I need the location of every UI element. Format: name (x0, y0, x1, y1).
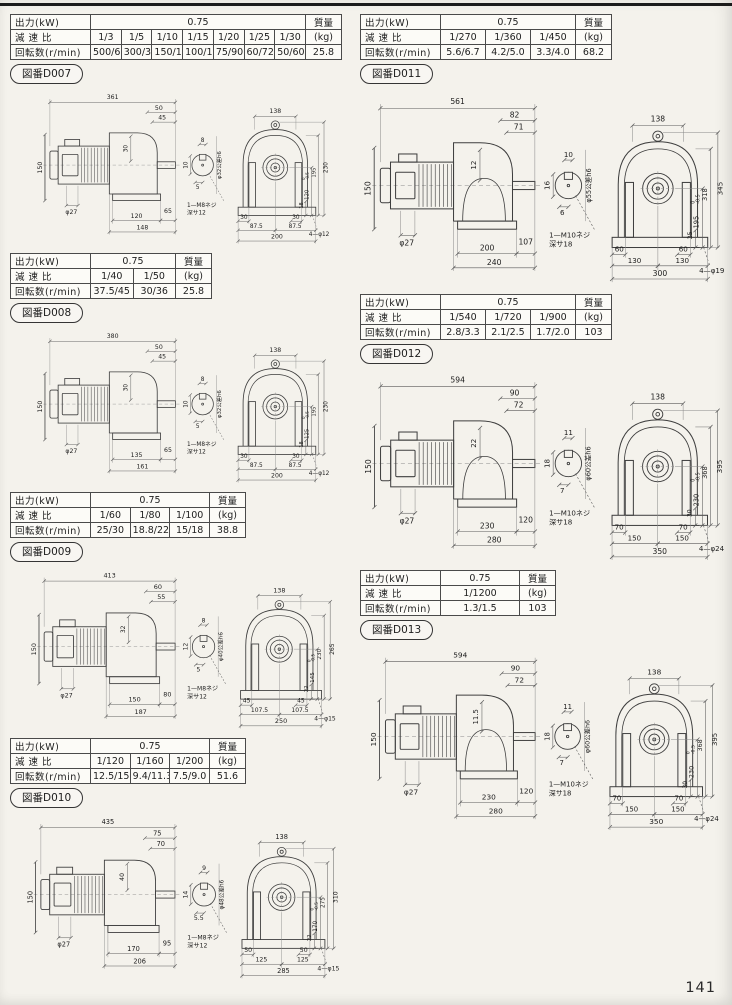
speed-value: 5.6/6.7 (441, 45, 486, 60)
dim-key_side: 10 (183, 400, 189, 408)
kg-label: (kg) (576, 30, 612, 45)
dim-key_bot: 5 (196, 185, 200, 191)
dim-inner: 230 (317, 649, 323, 660)
dim-body: 30 (124, 145, 130, 153)
dim-height: 150 (30, 643, 38, 655)
kg-label: (kg) (176, 269, 212, 284)
speed-label: 回転数(r/min) (11, 769, 91, 784)
output-value: 0.75 (441, 15, 576, 30)
dim-tol_l: -0.5 (696, 194, 702, 204)
speed-value: 500/600 (91, 45, 122, 60)
dim-depth: 深サ12 (187, 448, 206, 456)
mass-label: 質量 (576, 295, 612, 310)
dim-base_w: 300 (653, 269, 668, 278)
dim-screw: 1—M10ネジ (549, 781, 589, 789)
dim-toe: 22 (304, 686, 310, 693)
dim-key_bot: 5 (196, 424, 200, 430)
speed-value: 30/36 (133, 284, 176, 299)
dim-height: 150 (364, 181, 373, 196)
dim-flange: 138 (647, 667, 661, 676)
speed-value: 37.5/45 (91, 284, 134, 299)
dim-key_top: 11 (564, 428, 573, 437)
dim-top2: 45 (158, 115, 166, 122)
dim-center1: 87.5 (250, 224, 263, 230)
dim-mshaft: φ27 (404, 788, 419, 797)
dim-key_side: 18 (543, 458, 552, 468)
dim-base_w: 250 (275, 717, 287, 725)
speed-value: 4.2/5.0 (486, 45, 531, 60)
dim-mount: 170 (313, 920, 319, 931)
dim-overall: 230 (324, 401, 330, 412)
dim-center2: 87.5 (289, 463, 302, 469)
dim-depth: 深サ12 (187, 209, 206, 217)
mass-label: 質量 (176, 254, 212, 269)
dim-foot2: 70 (679, 522, 689, 531)
dim-foot1: 45 (243, 698, 251, 705)
dim-top2: 45 (158, 354, 166, 361)
figure-number-pill: 図番D011 (360, 64, 433, 84)
dim-center1: 150 (628, 534, 642, 543)
dim-overall: 310 (333, 891, 340, 903)
dim-base2: 187 (134, 708, 146, 716)
ratio-label: 減 速 比 (11, 508, 91, 523)
dim-total: 561 (450, 97, 465, 106)
dim-foot2: 60 (679, 245, 689, 254)
dim-depth: 深サ18 (549, 517, 573, 526)
ratio-value: 1/900 (531, 310, 576, 325)
speed-value: 100/120 (183, 45, 214, 60)
figure-block-d009: 出力(kW)0.75質量減 速 比1/601/801/100(kg)回転数(r/… (10, 492, 354, 731)
speed-label: 回転数(r/min) (361, 45, 441, 60)
dim-height: 150 (369, 732, 378, 746)
ratio-value: 1/60 (91, 508, 131, 523)
dim-top1: 60 (154, 583, 162, 591)
kg-label: (kg) (306, 30, 342, 45)
dim-inner: 195 (311, 406, 317, 416)
dim-mshaft: φ27 (399, 238, 414, 247)
output-label: 出力(kW) (361, 295, 441, 310)
dim-body: 30 (124, 384, 130, 392)
output-label: 出力(kW) (11, 254, 91, 269)
dim-depth: 深サ18 (549, 239, 573, 248)
dim-inner: 195 (311, 167, 317, 177)
dim-body: 22 (469, 439, 478, 448)
figure-number-pill: 図番D008 (10, 303, 83, 323)
spec-table-wrap: 出力(kW)0.75質量減 速 比1/5401/7201/900(kg)回転数(… (360, 294, 726, 340)
dim-center2: 150 (675, 534, 689, 543)
kg-label: (kg) (576, 310, 612, 325)
dim-shaft_dia: φ32公差h6 (215, 390, 223, 418)
dim-base2: 206 (133, 957, 146, 965)
dim-flange: 138 (651, 114, 666, 123)
dim-gap: 107 (518, 237, 533, 246)
dim-foot1: 60 (615, 245, 625, 254)
dim-tol_l: -0.5 (691, 745, 697, 754)
ratio-value: 1/15 (183, 30, 214, 45)
dim-key_top: 8 (201, 138, 205, 144)
dim-base_w: 350 (653, 547, 668, 556)
table-row: 出力(kW)0.75質量 (361, 571, 556, 586)
dim-foot2: 70 (675, 795, 684, 803)
ratio-label: 減 速 比 (11, 269, 91, 284)
dim-depth: 深サ18 (549, 789, 572, 798)
dim-tol_l: -0.5 (314, 902, 319, 911)
dim-foot1: 50 (244, 947, 252, 954)
dim-mshaft: φ27 (400, 516, 415, 525)
output-value: 0.75 (441, 295, 576, 310)
table-row: 回転数(r/min)5.6/6.74.2/5.03.3/4.068.2 (361, 45, 612, 60)
speed-value: 18.8/22.5 (130, 523, 170, 538)
ratio-value: 1/30 (275, 30, 306, 45)
dim-total: 361 (107, 94, 119, 101)
dim-screw: 1—M8ネジ (187, 686, 218, 693)
dim-flange: 138 (275, 833, 288, 841)
page-number: 141 (685, 980, 716, 996)
ratio-value: 1/270 (441, 30, 486, 45)
dim-center1: 130 (628, 256, 642, 265)
dim-foot1: 30 (240, 215, 248, 221)
spec-table-wrap: 出力(kW)0.75質量減 速 比1/1201/1601/200(kg)回転数(… (10, 738, 354, 784)
dim-holes: 4—φ12 (309, 232, 330, 238)
figure-number-pill: 図番D012 (360, 344, 433, 364)
mass-label: 質量 (576, 15, 612, 30)
technical-drawing: 435757040150φ27170952069145.5φ48公差h61—M8… (10, 809, 354, 981)
mass-label: 質量 (520, 571, 556, 586)
dim-overall: 265 (329, 643, 336, 655)
ratio-value: 1/200 (170, 754, 210, 769)
dim-top1: 50 (155, 105, 163, 112)
ratio-value: 1/160 (130, 754, 170, 769)
dim-key_bot: 7 (560, 759, 564, 767)
speed-value: 50/60 (275, 45, 306, 60)
mass-label: 質量 (210, 493, 246, 508)
output-label: 出力(kW) (361, 571, 441, 586)
dim-mshaft: φ27 (60, 691, 72, 699)
ratio-value: 1/100 (170, 508, 210, 523)
dim-top1: 75 (153, 829, 161, 837)
dim-gap: 65 (164, 208, 172, 215)
dim-mount: 120 (304, 189, 310, 200)
dim-base2: 240 (487, 258, 502, 267)
dim-mount: 145 (310, 672, 316, 683)
table-row: 出力(kW)0.75質量 (361, 15, 612, 30)
dim-key_side: 18 (543, 732, 551, 741)
dim-base1: 230 (480, 521, 495, 530)
figure-block-d008: 出力(kW)0.75質量減 速 比1/401/50(kg)回転数(r/min)3… (10, 253, 354, 485)
dim-foot2: 50 (300, 947, 308, 954)
table-row: 減 速 比1/1201/1601/200(kg) (11, 754, 246, 769)
table-row: 減 速 比1/601/801/100(kg) (11, 508, 246, 523)
dim-screw: 1—M8ネジ (187, 935, 219, 942)
dim-top1: 90 (510, 388, 520, 397)
dim-holes: 4—φ15 (317, 965, 339, 972)
dim-total: 594 (453, 651, 467, 660)
speed-value: 1.3/1.5 (441, 601, 520, 616)
figure-block-d013: 出力(kW)0.75質量減 速 比1/1200(kg)回転数(r/min)1.3… (360, 570, 726, 833)
speed-value: 12.5/15 (91, 769, 131, 784)
dim-base1: 200 (480, 244, 495, 253)
dim-tol_l: -0.5 (311, 654, 316, 662)
table-row: 回転数(r/min)1.3/1.5103 (361, 601, 556, 616)
dim-base2: 280 (487, 536, 502, 545)
dim-overall: 345 (715, 182, 724, 196)
dim-gap: 95 (163, 940, 171, 948)
dim-depth: 深サ12 (187, 941, 207, 949)
ratio-value: 1/5 (121, 30, 152, 45)
speed-label: 回転数(r/min) (11, 45, 91, 60)
output-value: 0.75 (91, 493, 210, 508)
dim-holes: 4—φ19 (699, 266, 725, 275)
dim-flange: 138 (273, 586, 285, 594)
table-row: 出力(kW)0.75質量 (11, 493, 246, 508)
ratio-value: 1/3 (91, 30, 122, 45)
spec-table-D013: 出力(kW)0.75質量減 速 比1/1200(kg)回転数(r/min)1.3… (360, 570, 556, 616)
dim-top2: 72 (514, 401, 524, 410)
dim-gap: 80 (163, 691, 171, 699)
dim-key_bot: 5.5 (194, 915, 204, 922)
dim-body: 12 (469, 161, 478, 170)
output-value: 0.75 (91, 254, 176, 269)
speed-value: 1.7/2.0 (531, 325, 576, 340)
figure-block-d011: 出力(kW)0.75質量減 速 比1/2701/3601/450(kg)回転数(… (360, 14, 726, 287)
speed-value: 15/18 (170, 523, 210, 538)
figure-number-pill: 図番D013 (360, 620, 433, 640)
output-value: 0.75 (441, 571, 520, 586)
table-row: 回転数(r/min)37.5/4530/3625.8 (11, 284, 212, 299)
table-row: 回転数(r/min)25/3018.8/22.515/1838.8 (11, 523, 246, 538)
dim-center1: 87.5 (250, 463, 263, 469)
drawing-svg-D007: 361504530150φ27120651488105φ32公差h61—M8ネジ… (10, 85, 354, 246)
dim-total: 380 (107, 333, 119, 340)
dim-base_w: 350 (649, 817, 663, 826)
dim-shaft_dia: φ55公差h6 (584, 168, 593, 202)
dim-base2: 161 (136, 463, 148, 470)
dim-base_w: 200 (271, 473, 283, 480)
drawing-svg-D012: 594907222150φ2723012028011187φ60公差h61—M1… (360, 365, 726, 563)
technical-drawing: 413605532150φ27150801878125φ40公差h61—M8ネジ… (10, 563, 354, 731)
speed-value: 9.4/11.3 (130, 769, 170, 784)
dim-mount: 230 (688, 766, 696, 778)
dim-height: 150 (364, 459, 373, 474)
spec-table-wrap: 出力(kW)0.75質量減 速 比1/2701/3601/450(kg)回転数(… (360, 14, 726, 60)
dim-shaft_dia: φ40公差h6 (216, 632, 224, 662)
dim-center2: 107.5 (291, 707, 308, 714)
top-rule (0, 3, 732, 6)
technical-drawing: 561827112150φ2720010724010166φ55公差h61—M1… (360, 85, 726, 287)
speed-value: 300/360 (121, 45, 152, 60)
table-row: 回転数(r/min)2.8/3.32.1/2.51.7/2.0103 (361, 325, 612, 340)
dim-top1: 50 (155, 344, 163, 351)
dim-base2: 280 (489, 806, 503, 815)
dim-base_w: 200 (271, 234, 283, 241)
ratio-label: 減 速 比 (361, 586, 441, 601)
dim-top2: 70 (157, 840, 165, 848)
dim-flange: 138 (269, 347, 281, 354)
mass-value: 103 (576, 325, 612, 340)
dim-overall: 395 (711, 733, 719, 746)
dim-screw: 1—M8ネジ (187, 202, 217, 209)
ratio-value: 1/360 (486, 30, 531, 45)
output-value: 0.75 (91, 15, 306, 30)
dim-key_side: 16 (543, 180, 552, 190)
dim-gap: 120 (519, 787, 533, 796)
dim-base1: 120 (131, 213, 143, 220)
ratio-value: 1/10 (152, 30, 183, 45)
ratio-value: 1/720 (486, 310, 531, 325)
dim-toe: 18 (299, 202, 305, 208)
dim-center2: 150 (671, 805, 684, 813)
dim-holes: 4—φ15 (314, 716, 336, 723)
mass-value: 38.8 (210, 523, 246, 538)
table-row: 減 速 比1/1200(kg) (361, 586, 556, 601)
dim-flange: 138 (269, 108, 281, 115)
dim-base1: 170 (127, 945, 140, 953)
output-label: 出力(kW) (11, 739, 91, 754)
dim-center2: 125 (297, 957, 309, 964)
dim-top2: 55 (157, 593, 165, 601)
mass-value: 68.2 (576, 45, 612, 60)
figure-block-d007: 出力(kW)0.75質量減 速 比1/31/51/101/151/201/251… (10, 14, 354, 246)
speed-value: 7.5/9.0 (170, 769, 210, 784)
drawing-svg-D011: 561827112150φ2720010724010166φ55公差h61—M1… (360, 85, 726, 287)
dim-height: 150 (26, 891, 34, 904)
dim-body: 11.5 (472, 709, 480, 724)
dim-key_top: 11 (563, 703, 572, 711)
table-row: 出力(kW)0.75質量 (11, 739, 246, 754)
dim-holes: 4—φ12 (309, 471, 330, 477)
speed-label: 回転数(r/min) (361, 601, 441, 616)
figure-block-d010: 出力(kW)0.75質量減 速 比1/1201/1601/200(kg)回転数(… (10, 738, 354, 981)
table-row: 出力(kW)0.75質量 (11, 15, 342, 30)
dim-center2: 87.5 (289, 224, 302, 230)
ratio-value: 1/40 (91, 269, 134, 284)
speed-label: 回転数(r/min) (361, 325, 441, 340)
speed-label: 回転数(r/min) (11, 523, 91, 538)
dim-shaft_dia: φ32公差h6 (215, 151, 223, 179)
ratio-value: 1/540 (441, 310, 486, 325)
dim-base_w: 285 (277, 967, 290, 975)
dim-key_side: 14 (183, 891, 190, 899)
dim-top2: 71 (514, 123, 524, 132)
dim-mshaft: φ27 (65, 448, 77, 455)
ratio-value: 1/25 (244, 30, 275, 45)
dim-screw: 1—M10ネジ (549, 508, 590, 517)
dim-inner: 368 (696, 739, 704, 751)
dim-overall: 230 (324, 162, 330, 173)
dim-toe: 18 (299, 441, 305, 447)
ratio-value: 1/80 (130, 508, 170, 523)
dim-mount: 195 (693, 216, 701, 229)
ratio-value: 1/50 (133, 269, 176, 284)
dim-overall: 395 (715, 460, 724, 474)
output-label: 出力(kW) (11, 493, 91, 508)
spec-table-D007: 出力(kW)0.75質量減 速 比1/31/51/101/151/201/251… (10, 14, 342, 60)
dim-tol_l: -0.5 (305, 411, 310, 419)
ratio-label: 減 速 比 (11, 754, 91, 769)
speed-value: 2.8/3.3 (441, 325, 486, 340)
speed-value: 75/90 (213, 45, 244, 60)
ratio-label: 減 速 比 (11, 30, 91, 45)
dim-holes: 4—φ24 (694, 815, 719, 823)
drawing-svg-D010: 435757040150φ27170952069145.5φ48公差h61—M8… (10, 809, 354, 981)
catalog-page: 出力(kW)0.75質量減 速 比1/31/51/101/151/201/251… (0, 0, 732, 1005)
figure-block-d012: 出力(kW)0.75質量減 速 比1/5401/7201/900(kg)回転数(… (360, 294, 726, 563)
spec-table-wrap: 出力(kW)0.75質量減 速 比1/1200(kg)回転数(r/min)1.3… (360, 570, 726, 616)
drawing-svg-D009: 413605532150φ27150801878125φ40公差h61—M8ネジ… (10, 563, 354, 731)
dim-total: 435 (102, 818, 115, 826)
dim-center1: 150 (625, 805, 638, 813)
dim-foot2: 30 (292, 215, 300, 221)
mass-value: 25.8 (176, 284, 212, 299)
dim-center1: 125 (256, 957, 268, 964)
dim-base1: 150 (128, 696, 140, 704)
dim-foot1: 30 (240, 454, 248, 460)
dim-height: 150 (37, 401, 44, 413)
spec-table-D009: 出力(kW)0.75質量減 速 比1/601/801/100(kg)回転数(r/… (10, 492, 246, 538)
dim-key_bot: 6 (560, 208, 565, 217)
dim-total: 413 (103, 572, 115, 580)
dim-body: 32 (120, 625, 127, 633)
dim-key_top: 8 (202, 617, 206, 624)
speed-value: 60/72 (244, 45, 275, 60)
ratio-value: 1/450 (531, 30, 576, 45)
kg-label: (kg) (520, 586, 556, 601)
output-value: 0.75 (91, 739, 210, 754)
dim-body: 40 (119, 873, 126, 881)
table-row: 出力(kW)0.75質量 (361, 295, 612, 310)
dim-tol_l: -0.5 (305, 172, 310, 180)
mass-label: 質量 (210, 739, 246, 754)
dim-key_top: 9 (202, 865, 206, 872)
right-column: 出力(kW)0.75質量減 速 比1/2701/3601/450(kg)回転数(… (360, 14, 726, 840)
dim-foot2: 45 (297, 698, 305, 705)
table-row: 減 速 比1/2701/3601/450(kg) (361, 30, 612, 45)
dim-total: 594 (450, 375, 465, 384)
speed-value: 25/30 (91, 523, 131, 538)
drawing-svg-D008: 380504530150φ27135651618105φ32公差h61—M8ネジ… (10, 324, 354, 485)
dim-height: 150 (37, 162, 44, 174)
technical-drawing: 380504530150φ27135651618105φ32公差h61—M8ネジ… (10, 324, 354, 485)
ratio-label: 減 速 比 (361, 30, 441, 45)
dim-base1: 135 (131, 452, 143, 459)
table-row: 減 速 比1/5401/7201/900(kg) (361, 310, 612, 325)
spec-table-wrap: 出力(kW)0.75質量減 速 比1/601/801/100(kg)回転数(r/… (10, 492, 354, 538)
dim-key_top: 8 (201, 377, 205, 383)
spec-table-D011: 出力(kW)0.75質量減 速 比1/2701/3601/450(kg)回転数(… (360, 14, 612, 60)
dim-screw: 1—M10ネジ (549, 230, 590, 239)
dim-tol_l: -0.5 (695, 472, 701, 481)
kg-label: (kg) (210, 754, 246, 769)
dim-top1: 90 (511, 664, 521, 673)
dim-shaft_dia: φ60公差h6 (582, 720, 591, 753)
table-row: 減 速 比1/401/50(kg) (11, 269, 212, 284)
figure-number-pill: 図番D010 (10, 788, 83, 808)
table-row: 回転数(r/min)500/600300/360150/180100/12075… (11, 45, 342, 60)
table-row: 減 速 比1/31/51/101/151/201/251/30(kg) (11, 30, 342, 45)
dim-toe: 22 (307, 934, 313, 941)
left-column: 出力(kW)0.75質量減 速 比1/31/51/101/151/201/251… (10, 14, 354, 988)
ratio-value: 1/20 (213, 30, 244, 45)
mass-label: 質量 (306, 15, 342, 30)
dim-gap: 120 (518, 515, 533, 524)
dim-mshaft: φ27 (65, 209, 77, 216)
dim-mount: 230 (692, 494, 700, 507)
technical-drawing: 361504530150φ27120651488105φ32公差h61—M8ネジ… (10, 85, 354, 246)
drawing-svg-D013: 594907211.5150φ2723012028011187φ60公差h61—… (360, 641, 726, 833)
dim-key_bot: 7 (560, 486, 565, 495)
dim-mshaft: φ27 (57, 941, 70, 949)
mass-value: 51.6 (210, 769, 246, 784)
